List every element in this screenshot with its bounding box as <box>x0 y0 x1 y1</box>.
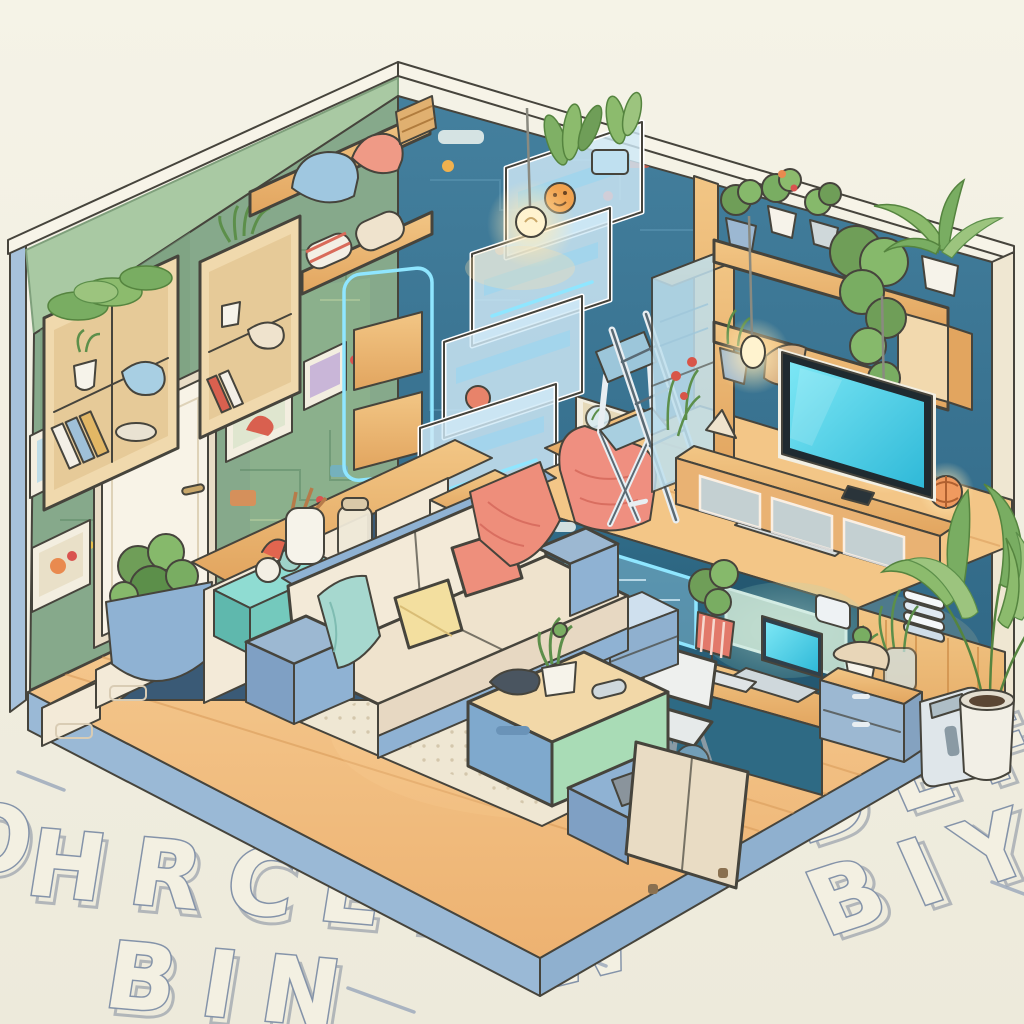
drawer-handle <box>852 694 870 699</box>
illustration-stage: Cozy Tech Tiny Home — Isometric Cutaway … <box>0 0 1024 1024</box>
rolled-towel <box>256 558 280 582</box>
plant-pot <box>960 690 1014 780</box>
armchair-foot <box>718 868 728 878</box>
right-edge-band <box>992 252 1014 700</box>
armchair-foot <box>648 884 658 894</box>
drawer-handle <box>852 722 870 727</box>
bowl <box>116 423 156 441</box>
table-plant-pot <box>542 662 576 696</box>
illustration-canvas: Cozy Tech Tiny Home — Isometric Cutaway … <box>0 0 1024 1024</box>
wall-glow <box>465 246 575 290</box>
table-drawer-notch <box>496 726 530 735</box>
left-edge-band <box>10 238 26 712</box>
mug <box>222 302 240 327</box>
